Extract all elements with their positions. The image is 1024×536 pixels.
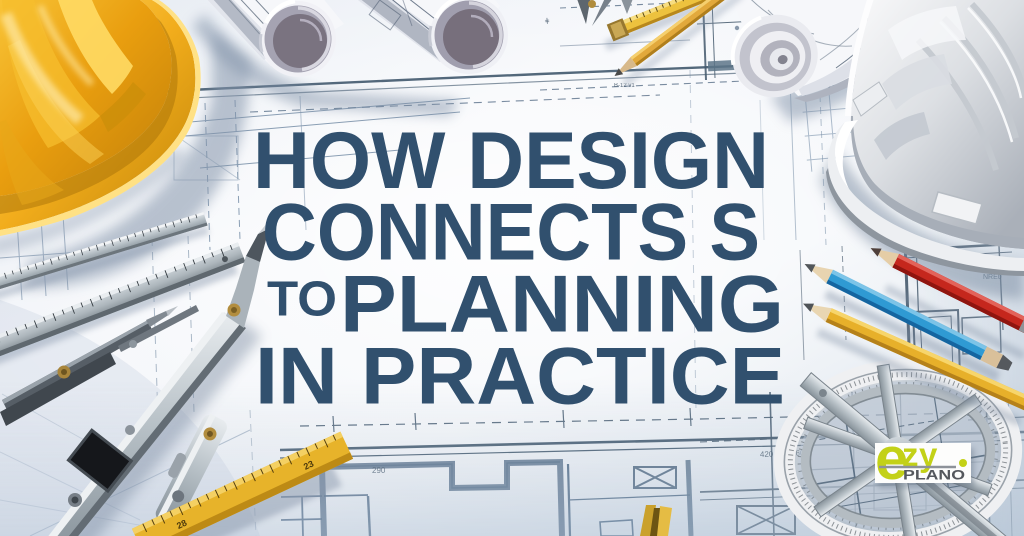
svg-text:IN PRACTICE: IN PRACTICE [255,332,785,422]
svg-text:TO: TO [267,273,337,327]
svg-text:PLANO: PLANO [903,468,965,483]
